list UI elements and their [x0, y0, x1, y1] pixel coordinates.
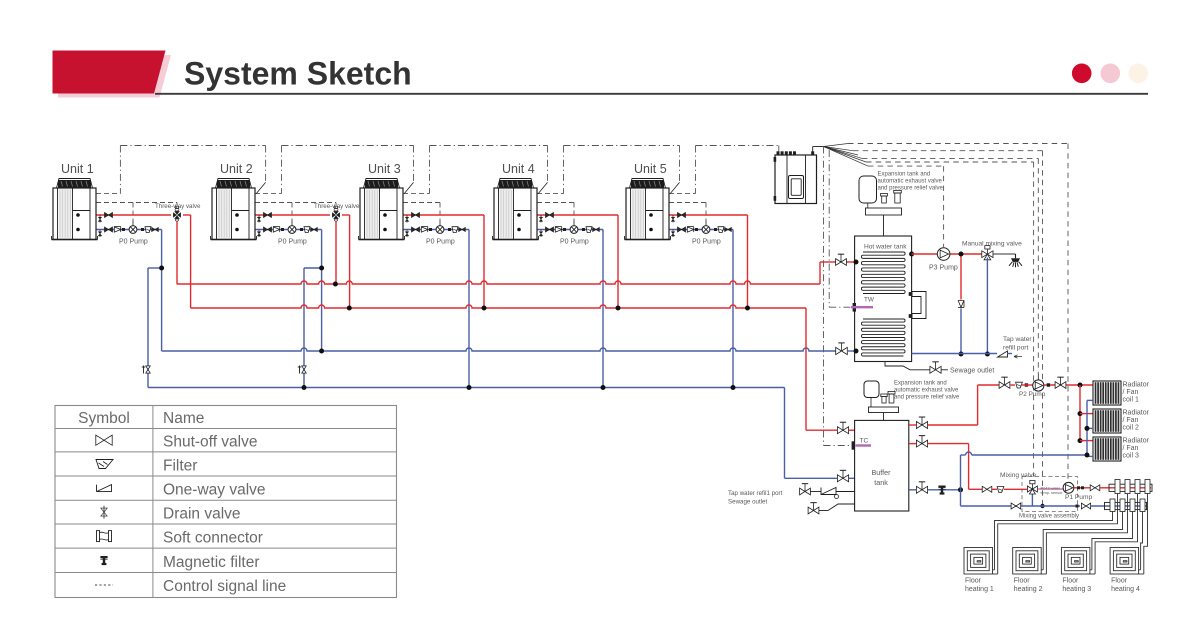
svg-text:P0 Pump: P0 Pump: [119, 239, 148, 246]
svg-text:heating 3: heating 3: [1062, 586, 1091, 593]
svg-text:automatic exhaust valve: automatic exhaust valve: [894, 388, 959, 394]
svg-text:Radiator: Radiator: [1123, 410, 1150, 417]
svg-text:P0 Pump: P0 Pump: [278, 239, 307, 246]
svg-text:coil 1: coil 1: [1123, 397, 1139, 404]
svg-text:and pressure relief valve: and pressure relief valve: [894, 395, 960, 401]
svg-text:Shut-off valve: Shut-off valve: [163, 434, 258, 451]
svg-text:Tap water: Tap water: [1003, 336, 1032, 343]
svg-text:Tap water refil1 port: Tap water refil1 port: [728, 490, 783, 497]
svg-text:Unit 1: Unit 1: [61, 162, 94, 176]
svg-text:Buffer: Buffer: [871, 468, 891, 477]
svg-text:Unit 2: Unit 2: [220, 162, 253, 176]
svg-text:Unit 5: Unit 5: [634, 162, 667, 176]
svg-text:Floor: Floor: [965, 578, 982, 585]
svg-text:Hot water tank: Hot water tank: [864, 244, 907, 251]
svg-text:Drain valve: Drain valve: [163, 506, 241, 523]
svg-text:Soft connector: Soft connector: [163, 530, 263, 547]
svg-text:tank: tank: [874, 478, 888, 487]
svg-text:Radiator: Radiator: [1123, 438, 1150, 445]
svg-text:Three-way valve: Three-way valve: [314, 203, 360, 210]
svg-text:Control signal line: Control signal line: [163, 578, 286, 595]
svg-text:Radiator: Radiator: [1123, 382, 1150, 389]
svg-text:Expansion tank and: Expansion tank and: [894, 381, 947, 387]
svg-text:P2 Pump: P2 Pump: [1019, 391, 1046, 398]
svg-text:P0 Pump: P0 Pump: [560, 239, 589, 246]
svg-text:One-way valve: One-way valve: [163, 482, 266, 499]
svg-text:Floor: Floor: [1062, 578, 1079, 585]
svg-text:Filter: Filter: [163, 458, 197, 475]
svg-text:temp. sensor: temp. sensor: [1041, 491, 1064, 495]
svg-text:refill port: refill port: [1003, 345, 1028, 352]
svg-text:Expansion tank and: Expansion tank and: [878, 172, 931, 178]
svg-text:Three-way valve: Three-way valve: [155, 203, 201, 210]
svg-text:System Sketch: System Sketch: [184, 56, 412, 92]
svg-text:Unit 4: Unit 4: [502, 162, 535, 176]
svg-text:TC: TC: [860, 438, 869, 445]
svg-text:Sewage outlet: Sewage outlet: [728, 499, 767, 506]
svg-text:coil 3: coil 3: [1123, 453, 1139, 460]
svg-text:Sewage outlet: Sewage outlet: [950, 367, 994, 374]
svg-text:/ Fan: / Fan: [1123, 389, 1139, 396]
svg-text:Floor: Floor: [1014, 578, 1031, 585]
svg-text:and pressure relief valve: and pressure relief valve: [878, 186, 944, 192]
svg-text:Symbol: Symbol: [78, 410, 130, 427]
svg-text:/ Fan: / Fan: [1123, 417, 1139, 424]
svg-text:heating 2: heating 2: [1014, 586, 1043, 593]
svg-text:coil 2: coil 2: [1123, 425, 1139, 432]
svg-text:Mixing valve: Mixing valve: [1000, 472, 1037, 479]
svg-text:Mixing valve assembly: Mixing valve assembly: [1019, 514, 1079, 520]
svg-text:Magnetic filter: Magnetic filter: [163, 554, 259, 571]
svg-text:heating 4: heating 4: [1111, 586, 1140, 593]
svg-text:TW: TW: [864, 297, 875, 304]
svg-text:Floor: Floor: [1111, 578, 1128, 585]
svg-text:Unit 3: Unit 3: [368, 162, 401, 176]
svg-text:automatic exhaust valve: automatic exhaust valve: [878, 179, 943, 185]
svg-text:P1 Pump: P1 Pump: [1065, 494, 1092, 501]
svg-text:P0 Pump: P0 Pump: [692, 239, 721, 246]
svg-text:heating 1: heating 1: [965, 586, 994, 593]
svg-text:P3 Pump: P3 Pump: [929, 265, 958, 272]
svg-text:/ Fan: / Fan: [1123, 445, 1139, 452]
svg-text:Manual mixing valve: Manual mixing valve: [962, 241, 1022, 248]
svg-text:Name: Name: [163, 410, 204, 427]
svg-text:P0 Pump: P0 Pump: [426, 239, 455, 246]
